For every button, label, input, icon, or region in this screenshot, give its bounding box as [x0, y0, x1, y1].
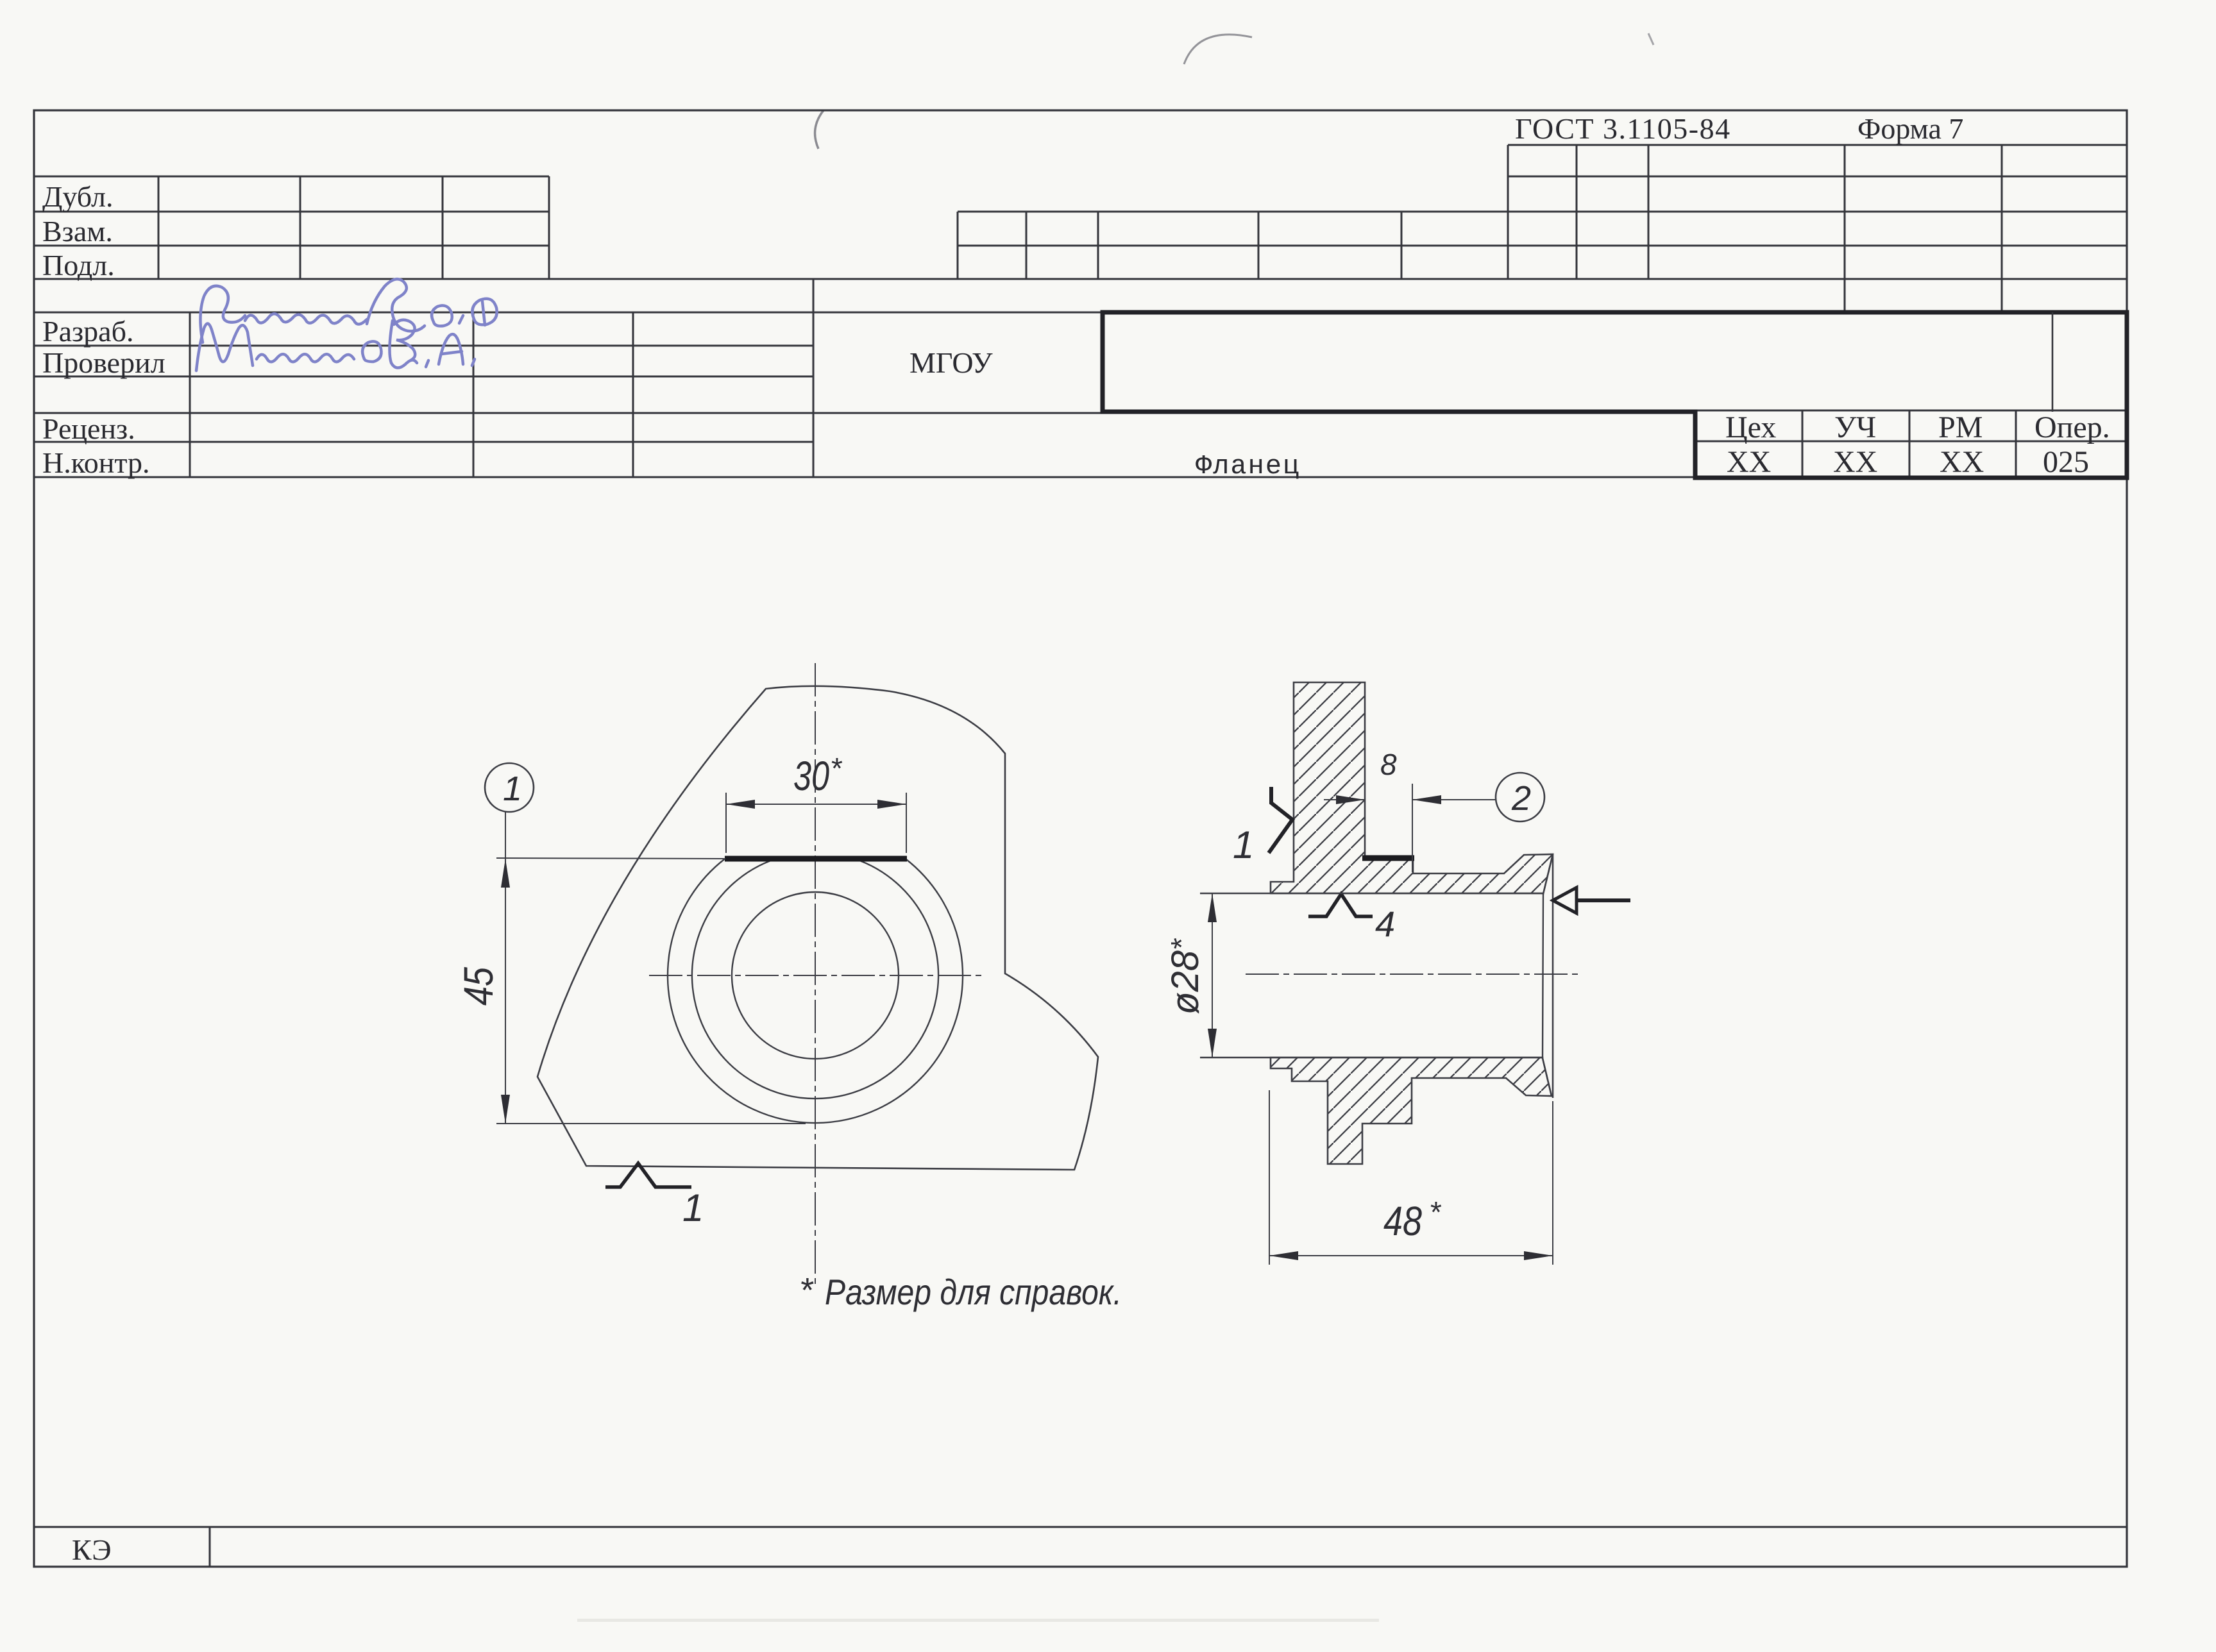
svg-text:*: * — [799, 1271, 814, 1310]
svg-text:45: 45 — [455, 967, 502, 1006]
svg-text:2: 2 — [1511, 779, 1531, 818]
svg-text:Проверил: Проверил — [42, 346, 165, 379]
svg-text:ГОСТ 3.1105-84: ГОСТ 3.1105-84 — [1515, 112, 1731, 145]
svg-text:Фланец: Фланец — [1196, 451, 1300, 482]
svg-text:ХХ: ХХ — [1727, 445, 1771, 479]
svg-text:Форма 7: Форма 7 — [1857, 112, 1963, 145]
svg-text:Взам.: Взам. — [42, 215, 113, 248]
svg-text:30: 30 — [793, 753, 829, 799]
svg-text:4: 4 — [1375, 904, 1395, 944]
svg-text:025: 025 — [2043, 445, 2089, 479]
svg-text:Разраб.: Разраб. — [42, 315, 134, 348]
svg-text:Опер.: Опер. — [2034, 410, 2110, 444]
svg-text:1: 1 — [682, 1186, 704, 1229]
svg-text:*: * — [1165, 938, 1198, 950]
svg-text:*: * — [830, 752, 843, 785]
svg-text:Дубл.: Дубл. — [42, 180, 114, 213]
svg-text:УЧ: УЧ — [1834, 410, 1876, 444]
svg-text:ХХ: ХХ — [1833, 445, 1877, 479]
svg-text:КЭ: КЭ — [72, 1533, 112, 1566]
svg-text:Реценз.: Реценз. — [42, 412, 135, 445]
svg-text:1: 1 — [1233, 823, 1254, 866]
svg-text:ø28: ø28 — [1163, 950, 1206, 1015]
svg-text:Н.контр.: Н.контр. — [42, 446, 150, 479]
svg-text:РМ: РМ — [1938, 410, 1983, 444]
svg-text:Подл.: Подл. — [42, 249, 115, 282]
svg-text:*: * — [1429, 1195, 1442, 1229]
svg-text:МГОУ: МГОУ — [909, 346, 993, 379]
svg-text:1: 1 — [503, 770, 522, 808]
svg-text:Цех: Цех — [1725, 410, 1776, 444]
svg-text:ХХ: ХХ — [1940, 445, 1984, 479]
svg-text:8: 8 — [1380, 748, 1397, 781]
svg-text:48: 48 — [1383, 1198, 1422, 1244]
svg-text:Размер для справок.: Размер для справок. — [825, 1272, 1122, 1312]
